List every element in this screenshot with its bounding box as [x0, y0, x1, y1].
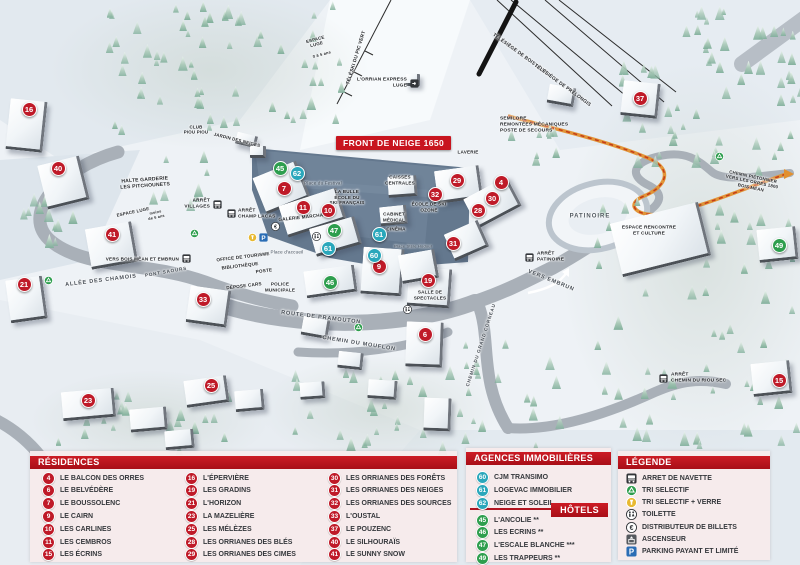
residence-name: LES ÉCRINS [60, 551, 102, 558]
agences-header: AGENCES IMMOBILIÈRES [466, 452, 611, 465]
residence-name: LE SILHOURAÏS [346, 539, 400, 546]
legend-key-label: ASCENSEUR [642, 536, 686, 543]
map-label: ESPACE RENCONTRE ET CULTURE [622, 225, 676, 237]
euro-icon: € [626, 522, 637, 533]
map-label: ARRÊT CHAMP LACAS [238, 208, 276, 220]
residence-name: LES ORRIANES DES FORÊTS [346, 475, 445, 482]
map-marker-49[interactable]: 49 [772, 238, 787, 253]
map-marker-61[interactable]: 61 [321, 241, 336, 256]
building [129, 406, 168, 432]
recycle-icon [626, 485, 637, 496]
legend-agence-row: 62NEIGE ET SOLEIL [476, 497, 554, 509]
svg-text:P: P [629, 548, 634, 557]
svg-text:P: P [261, 234, 266, 241]
map-marker-29[interactable]: 29 [450, 173, 465, 188]
map-marker-41[interactable]: 41 [105, 227, 120, 242]
residence-number-badge: 41 [328, 548, 341, 561]
building [367, 379, 397, 400]
lift-icon [626, 534, 637, 545]
legend-residence-row: 30LES ORRIANES DES FORÊTS [328, 472, 445, 484]
legend-residence-row: 41LE SUNNY SNOW [328, 549, 405, 561]
map-label: LA BULLE ÉCOLE DU SKI FRANÇAIS [329, 189, 364, 206]
residence-number-badge: 40 [328, 536, 341, 549]
map-label: Place Stèle Hodoul [394, 245, 432, 250]
legend-residence-row: 11LES CEMBROS [42, 536, 111, 548]
agence-number-badge: 60 [476, 471, 489, 484]
legend-agence-row: 60CJM TRANSIMO [476, 471, 548, 483]
residence-number-badge: 33 [328, 510, 341, 523]
residence-number-badge: 37 [328, 523, 341, 536]
map-label: SALLE DE SPECTACLES [414, 290, 447, 301]
legend-residence-row: 28LES ORRIANES DES BLÉS [185, 536, 292, 548]
recycle-icon [44, 276, 53, 285]
residence-name: LES ORRIANES DES BLÉS [203, 539, 292, 546]
toilet-icon [626, 509, 637, 520]
building [186, 285, 232, 327]
panel-agences: AGENCES IMMOBILIÈRES HÔTELS 60CJM TRANSI… [466, 448, 611, 562]
bus-icon [626, 473, 637, 484]
agence-name: NEIGE ET SOLEIL [494, 500, 554, 507]
map-marker-23[interactable]: 23 [81, 393, 96, 408]
legend-residence-row: 21L'HORIZON [185, 498, 241, 510]
parking-icon: P [626, 546, 637, 557]
legend-key-row: ASCENSEUR [626, 534, 686, 546]
map-marker-37[interactable]: 37 [633, 91, 648, 106]
legend-residence-row: 6LE BELVÉDÈRE [42, 485, 113, 497]
legend-agence-row: 61LOGEVAC IMMOBILIER [476, 484, 572, 496]
residence-number-badge: 6 [42, 484, 55, 497]
bus-icon [525, 253, 534, 262]
legend-residence-row: 19LES GRADINS [185, 485, 251, 497]
map-label: ARRÊT PATINOIRE [537, 251, 564, 263]
map-label: CABINET MÉDICAL [383, 212, 405, 223]
residence-number-badge: 10 [42, 523, 55, 536]
legend-residence-row: 4LE BALCON DES ORRES [42, 472, 144, 484]
legend-residence-row: 33L'OUSTAL [328, 510, 380, 522]
map-label: L'ORRIAN EXPRESS LUGE [357, 77, 407, 89]
agence-number-badge: 62 [476, 497, 489, 510]
map-marker-32[interactable]: 32 [428, 187, 443, 202]
legend-key-row: TRI SELECTIF + VERRE [626, 497, 721, 509]
building [337, 351, 364, 371]
residence-number-badge: 32 [328, 497, 341, 510]
legend-residence-row: 7LE BOUSSOLENC [42, 498, 120, 510]
hotel-name: LES TRAPPEURS ** [494, 555, 560, 562]
legend-hotel-row: 49LES TRAPPEURS ** [476, 552, 560, 564]
legend-key-label: TRI SELECTIF [642, 487, 689, 494]
map-marker-62[interactable]: 62 [290, 166, 305, 181]
hotel-number-badge: 49 [476, 552, 489, 565]
map-marker-19[interactable]: 19 [421, 273, 436, 288]
residence-number-badge: 16 [185, 472, 198, 485]
legend-key-label: TRI SELECTIF + VERRE [642, 499, 721, 506]
bus-icon [227, 209, 236, 218]
residence-name: LE BELVÉDÈRE [60, 487, 113, 494]
residence-name: LES ORRIANES DES NEIGES [346, 487, 443, 494]
residence-number-badge: 15 [42, 548, 55, 561]
map-marker-40[interactable]: 40 [51, 161, 66, 176]
map-marker-46[interactable]: 46 [323, 275, 338, 290]
hotel-number-badge: 46 [476, 526, 489, 539]
residence-number-badge: 31 [328, 484, 341, 497]
bus-icon [659, 374, 668, 383]
map-marker-33[interactable]: 33 [196, 292, 211, 307]
hotel-name: L'ESCALE BLANCHE *** [494, 542, 575, 549]
map-label: CLUB PIOU PIOU [184, 125, 209, 136]
residence-number-badge: 7 [42, 497, 55, 510]
map-label: ÉCOLE DE SKI OZONE [412, 202, 447, 213]
legend-key-row: TRI SELECTIF [626, 484, 689, 496]
agence-name: LOGEVAC IMMOBILIER [494, 487, 572, 494]
residence-number-badge: 21 [185, 497, 198, 510]
map-marker-11[interactable]: 11 [296, 200, 311, 215]
residence-number-badge: 29 [185, 548, 198, 561]
residence-name: L'HORIZON [203, 500, 241, 507]
map-label: SEMILORE REMONTÉES MÉCANIQUES POSTE DE S… [500, 116, 568, 133]
building [423, 398, 451, 432]
residence-name: L'ÉPERVIÈRE [203, 475, 249, 482]
recycle-icon [715, 152, 724, 161]
map-marker-7[interactable]: 7 [277, 181, 292, 196]
legend-residence-row: 25LES MÉLÈZES [185, 523, 252, 535]
residence-name: LE POUZENC [346, 526, 391, 533]
legend-key-row: €DISTRIBUTEUR DE BILLETS [626, 521, 737, 533]
toilet-icon [403, 305, 412, 314]
residence-name: LES CEMBROS [60, 539, 111, 546]
residence-name: LE CAIRN [60, 513, 93, 520]
map-marker-45[interactable]: 45 [273, 161, 288, 176]
map-marker-25[interactable]: 25 [204, 378, 219, 393]
residence-name: LES ORRIANES DES CIMES [203, 551, 296, 558]
map-label: POLICE MUNICIPALE [265, 282, 295, 293]
legend-key-label: TOILETTE [642, 511, 676, 518]
residences-header: RÉSIDENCES [30, 456, 457, 469]
legend-residence-row: 31LES ORRIANES DES NEIGES [328, 485, 443, 497]
agence-name: CJM TRANSIMO [494, 474, 548, 481]
residence-name: LES CARLINES [60, 526, 111, 533]
map-label: ARRÊT CHEMIN DU RIOU SEC [671, 372, 726, 384]
hotel-number-badge: 47 [476, 539, 489, 552]
legend-residence-row: 23LA MAZELIÈRE [185, 510, 254, 522]
legende-header: LÉGENDE [618, 456, 770, 469]
panel-residences: RÉSIDENCES 4LE BALCON DES ORRES6LE BELVÉ… [30, 451, 457, 562]
legend-residence-row: 15LES ÉCRINS [42, 549, 102, 561]
residence-number-badge: 4 [42, 472, 55, 485]
legend-key-row: TOILETTE [626, 509, 676, 521]
legend-key-label: DISTRIBUTEUR DE BILLETS [642, 524, 737, 531]
legend-residence-row: 40LE SILHOURAÏS [328, 536, 400, 548]
map-marker-47[interactable]: 47 [327, 223, 342, 238]
legend-key-label: PARKING PAYANT ET LIMITÉ [642, 548, 738, 555]
map-marker-16[interactable]: 16 [22, 102, 37, 117]
legend-residence-row: 32LES ORRIANES DES SOURCES [328, 498, 451, 510]
map-label: LAVERIE [458, 149, 479, 155]
recycle-icon [354, 323, 363, 332]
legend-hotel-row: 46LES ECRINS ** [476, 527, 543, 539]
residence-number-badge: 28 [185, 536, 198, 549]
panel-legende: LÉGENDE ARRET DE NAVETTETRI SELECTIFTRI … [618, 451, 770, 560]
map-label: ARRÊT VILLAGES [184, 198, 210, 210]
glass-icon [248, 233, 257, 242]
legend-key-label: ARRET DE NAVETTE [642, 475, 712, 482]
residence-name: LE BOUSSOLENC [60, 500, 120, 507]
map-label: CAISSES CENTRALES [385, 175, 415, 186]
residence-name: L'OUSTAL [346, 513, 380, 520]
map-marker-61[interactable]: 61 [372, 227, 387, 242]
map-label: Place d'accueil [271, 249, 304, 254]
map-label: PATINOIRE [570, 213, 611, 220]
hotels-header: HÔTELS [551, 503, 608, 517]
map-marker-30[interactable]: 30 [485, 191, 500, 206]
legend-residence-row: 10LES CARLINES [42, 523, 111, 535]
svg-text:€: € [630, 525, 634, 532]
bus-icon [213, 200, 222, 209]
agence-number-badge: 61 [476, 484, 489, 497]
legend-hotel-row: 47L'ESCALE BLANCHE *** [476, 540, 575, 552]
bus-icon [182, 254, 191, 263]
legend-residence-row: 29LES ORRIANES DES CIMES [185, 549, 296, 561]
residence-name: LA MAZELIÈRE [203, 513, 254, 520]
recycle-icon [190, 229, 199, 238]
map-marker-15[interactable]: 15 [772, 373, 787, 388]
resort-map: 1640412123253371110919629324302831371545… [0, 0, 800, 565]
hotel-name: L'ANCOLIE ** [494, 517, 539, 524]
residence-number-badge: 9 [42, 510, 55, 523]
map-marker-28[interactable]: 28 [471, 203, 486, 218]
hotel-name: LES ECRINS ** [494, 529, 543, 536]
toilet-icon [312, 232, 321, 241]
map-marker-21[interactable]: 21 [17, 277, 32, 292]
residence-number-badge: 11 [42, 536, 55, 549]
map-label: VERS BOIS MÉAN ET EMBRUN [106, 256, 179, 262]
residence-name: LES ORRIANES DES SOURCES [346, 500, 451, 507]
building [299, 381, 325, 400]
residence-name: LES GRADINS [203, 487, 251, 494]
hotel-number-badge: 45 [476, 514, 489, 527]
map-label: CINÉMA [386, 226, 405, 232]
legend-residence-row: 37LE POUZENC [328, 523, 391, 535]
legend-hotel-row: 45L'ANCOLIE ** [476, 514, 539, 526]
building [234, 389, 265, 412]
legend-key-row: ARRET DE NAVETTE [626, 472, 712, 484]
map-marker-60[interactable]: 60 [367, 248, 382, 263]
residence-number-badge: 30 [328, 472, 341, 485]
box-icon [410, 79, 419, 88]
legend-residence-row: 16L'ÉPERVIÈRE [185, 472, 249, 484]
residence-number-badge: 23 [185, 510, 198, 523]
map-label: Place du Festival [304, 180, 342, 185]
map-marker-4[interactable]: 4 [494, 175, 509, 190]
map-marker-31[interactable]: 31 [446, 236, 461, 251]
euro-icon: € [271, 222, 280, 231]
residence-name: LE SUNNY SNOW [346, 551, 405, 558]
legend-residence-row: 9LE CAIRN [42, 510, 93, 522]
legend-key-row: PPARKING PAYANT ET LIMITÉ [626, 546, 738, 558]
building [164, 429, 195, 450]
map-marker-6[interactable]: 6 [418, 327, 433, 342]
residence-name: LES MÉLÈZES [203, 526, 252, 533]
map-marker-10[interactable]: 10 [321, 203, 336, 218]
parking-icon: P [259, 233, 268, 242]
glass-icon [626, 497, 637, 508]
residence-number-badge: 19 [185, 484, 198, 497]
residence-number-badge: 25 [185, 523, 198, 536]
residence-name: LE BALCON DES ORRES [60, 475, 144, 482]
front-de-neige-banner: FRONT DE NEIGE 1650 [336, 136, 451, 150]
